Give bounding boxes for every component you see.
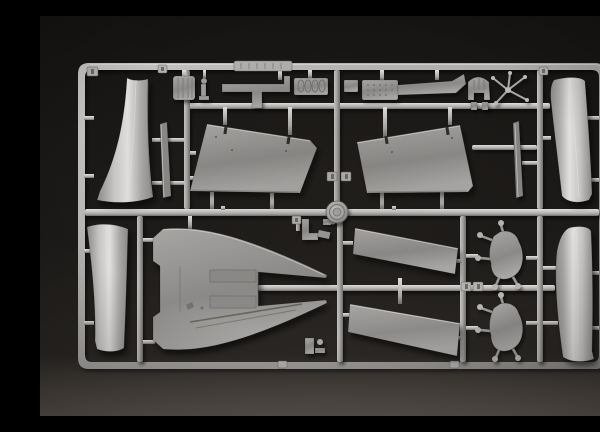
part-wing-panel-top-left <box>190 124 317 193</box>
part-rod-cluster <box>491 71 529 105</box>
sprue-photo <box>40 16 600 416</box>
part-strake-strip-top-right <box>513 121 523 198</box>
part-hatch-cover-upper <box>475 220 523 290</box>
logo-medallion <box>326 201 348 223</box>
part-strake-strip-top-left <box>160 122 171 198</box>
sprue-drawing <box>40 16 600 416</box>
part-intake-duct-bottom-left <box>87 224 128 351</box>
part-hatch-cover-lower <box>475 292 523 362</box>
brand-plate <box>234 61 292 71</box>
part-small-block <box>344 80 358 92</box>
part-flap-panel-upper <box>353 228 458 274</box>
part-textured-arm <box>362 74 466 100</box>
part-flap-panel-lower <box>348 304 460 356</box>
part-coiled-hose-block <box>294 78 328 95</box>
part-wing-panel-top-right <box>357 125 473 193</box>
part-intake-duct-top-right <box>551 77 592 202</box>
part-hook-clip-bottom <box>305 338 325 354</box>
part-ribbed-drum <box>173 76 195 100</box>
part-figurine-linkage <box>199 78 209 100</box>
part-intake-duct-top-left <box>97 78 153 202</box>
part-intake-duct-bottom-right <box>556 227 594 362</box>
